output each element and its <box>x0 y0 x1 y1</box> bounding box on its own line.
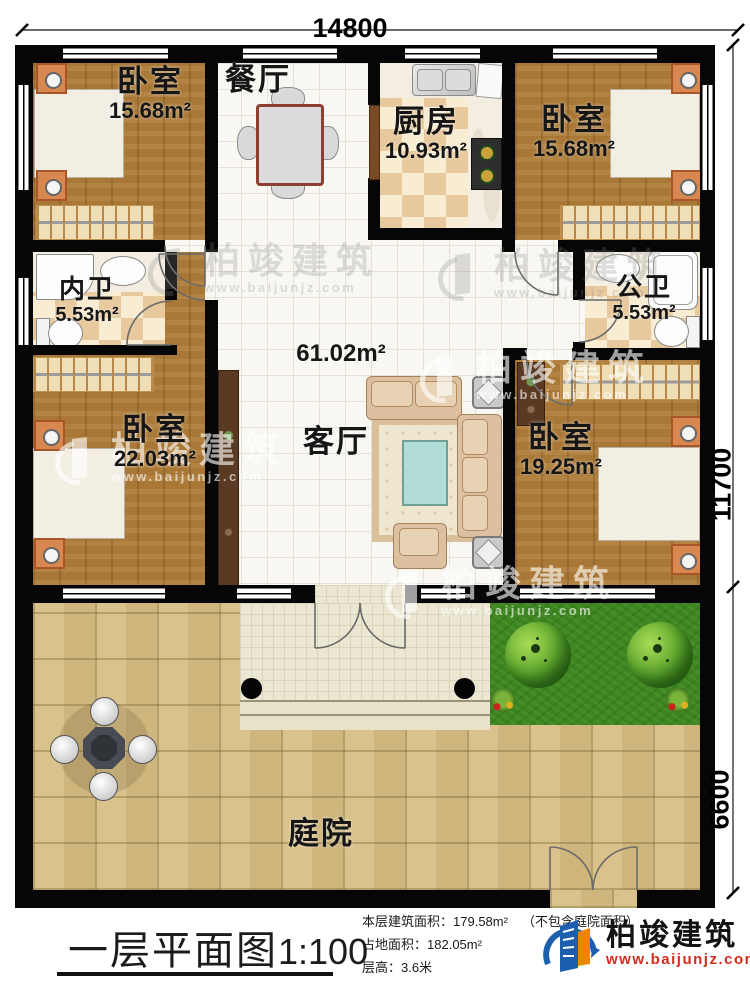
label-bedroom-bl: 卧室 22.03m² <box>94 414 216 470</box>
label-living: 客厅 <box>284 426 388 458</box>
cushion <box>399 528 439 556</box>
dimension-width: 14800 <box>298 13 402 44</box>
wall <box>368 63 380 105</box>
wall <box>515 348 527 360</box>
nightstand <box>671 63 702 94</box>
patio-chair <box>128 735 157 764</box>
window <box>17 278 30 345</box>
nightstand <box>34 420 65 451</box>
label-bath-inner: 内卫 5.53m² <box>34 276 140 325</box>
wall <box>558 240 700 252</box>
cushion <box>462 457 488 493</box>
window <box>520 587 655 600</box>
three-seat-sofa <box>457 414 502 538</box>
brand-logo: 柏竣建筑 www.baijunjz.com <box>538 912 750 976</box>
window <box>17 85 30 190</box>
tree <box>505 622 571 688</box>
wardrobe <box>560 364 700 400</box>
entrance-door-gap <box>315 585 405 603</box>
side-table <box>472 376 505 409</box>
patio-chair <box>90 697 119 726</box>
plan-title: 一层平面图1:100 <box>68 918 368 976</box>
dining-table <box>256 104 324 186</box>
nightstand <box>671 544 702 575</box>
label-courtyard: 庭院 <box>266 818 376 850</box>
flower-cluster <box>488 688 518 714</box>
window <box>405 47 480 60</box>
label-bath-public: 公卫 5.53m² <box>592 274 696 323</box>
label-hall-area: 61.02m² <box>278 340 404 366</box>
flower-cluster <box>663 688 693 714</box>
porch-column <box>241 678 262 699</box>
label-bedroom-tl: 卧室 15.68m² <box>95 66 205 122</box>
tv-cabinet <box>218 370 239 587</box>
window <box>243 47 337 60</box>
coffee-table <box>402 440 448 506</box>
window <box>553 47 657 60</box>
cushion <box>462 419 488 455</box>
wall <box>573 252 585 300</box>
patio-chair <box>50 735 79 764</box>
nightstand <box>36 63 67 94</box>
brand-logo-icon <box>538 912 600 976</box>
window <box>421 587 465 600</box>
wall <box>572 348 700 360</box>
loveseat-sofa <box>366 376 462 420</box>
window <box>63 47 168 60</box>
kitchen-sink <box>412 64 476 96</box>
fridge <box>476 63 505 99</box>
wall <box>368 228 515 240</box>
window <box>237 587 291 600</box>
porch-column <box>454 678 475 699</box>
window <box>701 268 714 340</box>
cushion <box>371 381 413 407</box>
burner <box>479 168 495 184</box>
armchair <box>393 523 447 569</box>
nightstand <box>36 170 67 201</box>
nightstand <box>671 416 702 447</box>
window <box>63 587 165 600</box>
gate-gap <box>550 890 637 908</box>
floor-plan: 14800 11700 6600 卧室 15.68m² 餐厅 厨房 10.93m… <box>0 0 750 988</box>
label-kitchen: 厨房 10.93m² <box>370 106 482 162</box>
wall <box>165 252 177 300</box>
label-bedroom-tr: 卧室 15.68m² <box>518 104 630 160</box>
wardrobe <box>560 205 700 240</box>
wall <box>33 345 177 355</box>
label-bedroom-br: 卧室 19.25m² <box>500 422 622 478</box>
wardrobe <box>36 205 154 240</box>
label-dining: 餐厅 <box>216 64 300 96</box>
dimension-house-depth: 11700 <box>707 415 738 555</box>
tall-cabinet <box>517 362 545 426</box>
wall <box>15 240 165 252</box>
cushion <box>415 381 457 407</box>
cushion <box>462 495 488 531</box>
side-table <box>472 536 505 569</box>
title-underline <box>57 972 333 976</box>
nightstand <box>671 170 702 201</box>
patio-chair <box>89 772 118 801</box>
tree <box>627 622 693 688</box>
wall <box>502 45 515 252</box>
nightstand <box>34 538 65 569</box>
porch-step <box>240 714 490 730</box>
window <box>701 85 714 190</box>
wardrobe <box>33 357 154 392</box>
dimension-yard-depth: 6600 <box>705 730 736 870</box>
